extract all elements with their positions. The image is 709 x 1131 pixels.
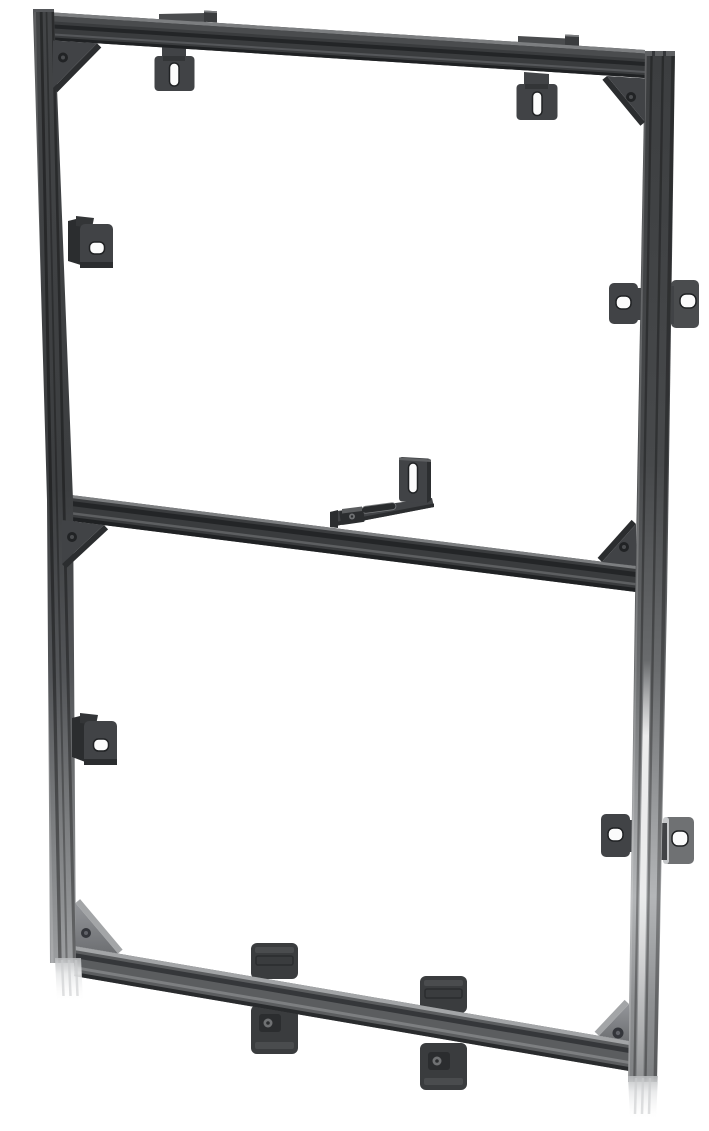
hanger-slot-hole [170, 63, 180, 86]
product-render [0, 0, 709, 1131]
foot-rib [62, 960, 64, 996]
clip-ridge [255, 1042, 294, 1049]
bracket-arm-foot [330, 510, 338, 528]
plate-slot-hole [409, 463, 418, 493]
hook-bottom-edge [80, 262, 113, 268]
rail-end-cap [645, 51, 675, 56]
clip-pin-center [266, 1021, 270, 1025]
hanger-step [163, 56, 185, 61]
gusset-hole-center [84, 931, 88, 935]
gusset-hole-center [622, 545, 626, 549]
hook-slot-hole [90, 242, 105, 254]
gusset-hole-center [70, 535, 74, 539]
plate-edge-dark [427, 459, 431, 504]
foot-rib [649, 1078, 650, 1114]
frame-render-canvas [0, 0, 709, 1131]
rail-end-cap [33, 9, 54, 12]
hook-slot-hole [94, 739, 109, 751]
hanger-neck [524, 72, 549, 86]
gusset-hole-center [61, 56, 65, 60]
foot-rib [69, 960, 71, 996]
right-end-cap-foot [628, 1076, 658, 1120]
left-end-cap-foot [55, 958, 83, 1002]
hanger-step [525, 84, 548, 89]
t-nut-pin-center [351, 515, 353, 517]
foot-rib [76, 960, 78, 996]
clip-ridge [424, 1078, 463, 1085]
ear-slot-hole [608, 828, 623, 841]
end-cap-groove [652, 51, 655, 56]
foot-rib [635, 1078, 636, 1114]
ear-slot-hole [680, 294, 696, 308]
hanger-slot-hole [533, 92, 543, 116]
gusset-hole-center [616, 1031, 620, 1035]
clip-ridge [255, 947, 294, 953]
hook-bottom-edge [84, 759, 117, 765]
ear-slot-hole [672, 831, 688, 846]
gusset-hole-center [629, 95, 633, 99]
foot-rib [642, 1078, 643, 1114]
clip-ridge [424, 980, 463, 986]
ear-slot-hole [616, 296, 631, 309]
end-cap-groove [663, 51, 666, 56]
clip-pin-center [435, 1059, 439, 1063]
